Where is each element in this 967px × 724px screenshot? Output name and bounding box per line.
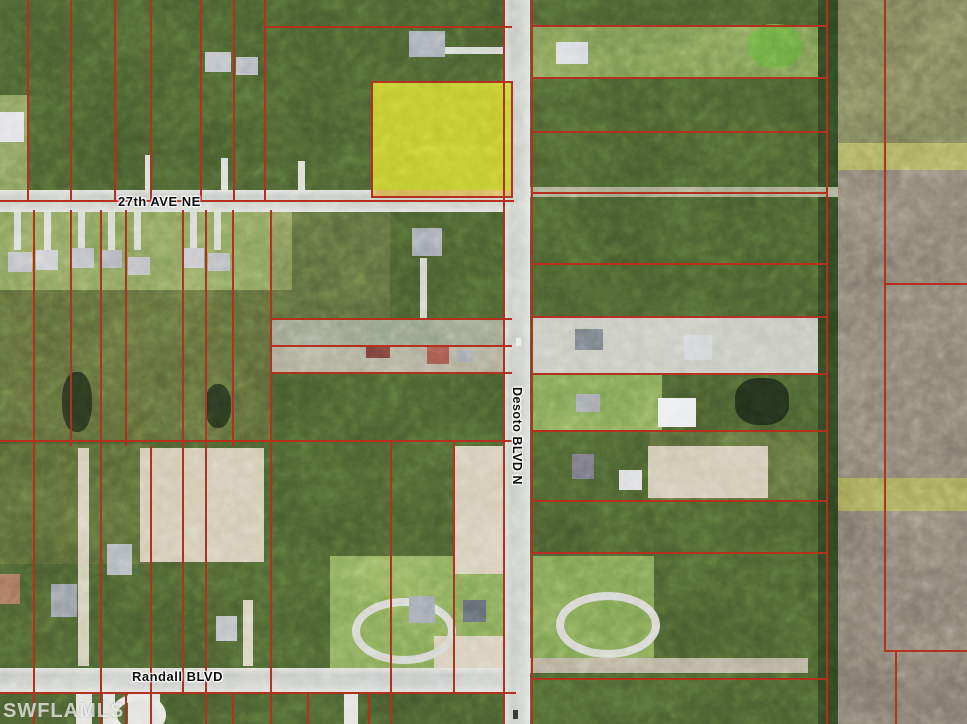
driveway-long	[243, 600, 253, 666]
house	[36, 250, 58, 270]
house	[412, 228, 442, 256]
driveway	[14, 212, 21, 250]
aerial-parcel-map: 27th AVE NE Desoto BLVD N Randall BLVD S…	[0, 0, 967, 724]
driveway	[44, 212, 51, 250]
parcel-line	[125, 210, 127, 446]
east-cleared-strip	[532, 316, 828, 373]
house	[107, 544, 132, 575]
house	[427, 347, 449, 364]
road-desoto	[504, 0, 530, 724]
driveway	[108, 212, 115, 250]
house	[572, 454, 594, 479]
parcel-boundary-layer	[0, 0, 967, 724]
house	[575, 329, 603, 350]
outbuilding	[619, 470, 642, 490]
house	[463, 600, 486, 622]
residential-lawn-row	[0, 212, 292, 290]
sand-clearing	[140, 448, 264, 562]
street-stub	[128, 694, 160, 724]
house	[409, 31, 445, 57]
parcel-line	[0, 692, 516, 694]
house	[236, 57, 258, 75]
parcel-line	[150, 0, 152, 202]
parcel-line	[531, 316, 828, 318]
east-lawn-low	[532, 556, 654, 668]
parcel-line	[182, 210, 184, 446]
scrub-mid	[272, 212, 390, 318]
parcel-line	[531, 0, 533, 724]
house	[684, 335, 712, 360]
scrub-east	[650, 430, 826, 500]
parcel-line	[270, 318, 512, 320]
highlighted-parcel	[372, 82, 512, 197]
parcel-line	[264, 0, 266, 202]
marsh-strip	[270, 318, 512, 345]
parcel-line	[70, 210, 72, 446]
house	[128, 257, 150, 275]
parcel-line	[531, 430, 828, 432]
parcel-line	[307, 694, 309, 724]
street-label-randall-blvd: Randall BLVD	[132, 669, 223, 684]
driveway	[145, 155, 152, 191]
road-27th-ave	[0, 190, 516, 212]
driveway	[221, 158, 228, 192]
outbuilding	[366, 345, 390, 358]
house	[8, 252, 32, 272]
farmstead-strip	[270, 345, 512, 372]
parcel-line	[503, 0, 505, 724]
driveway	[214, 212, 221, 250]
parcel-line	[531, 192, 828, 194]
field-band-south	[838, 478, 967, 511]
street-label-27th-ave-ne: 27th AVE NE	[118, 194, 201, 209]
field-olive-north	[838, 0, 967, 143]
house	[0, 112, 24, 142]
canopy-mottle-texture	[0, 0, 967, 724]
parcel-line	[232, 694, 234, 724]
parcel-line	[531, 500, 828, 502]
driveway-long	[78, 448, 89, 666]
road-randall-dirt-east	[516, 658, 808, 673]
vehicle	[513, 710, 518, 719]
parcel-line	[453, 440, 455, 692]
parcel-line	[200, 0, 202, 202]
driveway	[78, 212, 85, 250]
parcel-line	[531, 77, 828, 79]
pond-green	[748, 24, 802, 68]
lawn-randall-west	[330, 556, 512, 668]
scrub-low-left	[0, 444, 150, 564]
parcel-line	[100, 446, 102, 724]
driveway	[190, 212, 197, 250]
parcel-line	[270, 446, 272, 724]
parcel-line	[531, 263, 828, 265]
house	[208, 253, 230, 271]
pond	[735, 378, 789, 425]
scrub-left	[0, 290, 272, 442]
parcel-line	[884, 0, 886, 652]
parcel-line	[270, 210, 272, 446]
parcel-line	[33, 446, 35, 724]
field-brown-mid	[838, 170, 967, 478]
parcel-line	[100, 210, 102, 446]
house	[216, 616, 237, 641]
circular-driveway	[352, 598, 456, 664]
track-27th-east	[516, 187, 838, 197]
parcel-line	[205, 210, 207, 446]
treeline-strip	[818, 0, 840, 724]
house	[205, 52, 231, 72]
parcel-line	[368, 694, 370, 724]
parcel-line	[531, 678, 828, 680]
parcel-line	[33, 210, 35, 446]
parcel-line	[0, 200, 514, 202]
parcel-line	[264, 26, 512, 28]
parcel-line	[531, 373, 828, 375]
highlight-dirt-edge	[372, 190, 512, 197]
parcel-line	[531, 552, 828, 554]
woods-base	[0, 0, 838, 724]
house	[72, 248, 94, 268]
mls-watermark: SWFLAMLS	[3, 700, 124, 723]
parcel-line	[270, 372, 512, 374]
east-top-parcel	[532, 25, 828, 78]
house	[556, 42, 588, 64]
pond	[62, 372, 92, 432]
parcel-line	[114, 0, 116, 202]
parcel-line	[884, 283, 967, 285]
east-lawn-mid	[532, 374, 662, 432]
outbuilding	[457, 350, 473, 362]
vehicle	[516, 338, 521, 346]
parcel-line	[270, 345, 512, 347]
house	[51, 584, 77, 617]
left-lawn-strip	[0, 95, 27, 205]
parcel-line	[390, 440, 392, 724]
terrain-layer	[0, 0, 967, 724]
highlighted-parcel-border	[371, 81, 513, 198]
street-label-desoto-blvd-n: Desoto BLVD N	[510, 387, 524, 485]
field-brown-south	[838, 511, 967, 724]
parcel-line	[826, 0, 828, 724]
parcel-line	[884, 650, 967, 652]
photo-grain-texture	[0, 0, 967, 724]
house	[0, 574, 20, 604]
parcel-line	[0, 440, 512, 442]
house	[184, 248, 204, 268]
house	[102, 250, 122, 268]
street-stub	[344, 690, 358, 724]
house	[409, 596, 435, 623]
parcel-line	[895, 652, 897, 724]
parcel-line	[182, 446, 184, 692]
road-randall	[0, 668, 516, 692]
parcel-line	[70, 0, 72, 202]
driveway	[298, 161, 305, 191]
parcel-line	[125, 694, 127, 724]
parcel-line	[27, 0, 29, 202]
parcel-line	[232, 210, 234, 446]
circular-driveway	[556, 592, 660, 658]
driveway	[420, 258, 427, 320]
sand-east	[648, 446, 768, 498]
sand-randall-corner	[434, 636, 510, 668]
sand-desoto-west	[455, 446, 513, 574]
field-band-north	[838, 143, 967, 170]
parcel-line	[531, 25, 828, 27]
pond	[205, 384, 231, 428]
house	[658, 398, 696, 427]
house	[576, 394, 600, 412]
parcel-line	[233, 0, 235, 202]
parcel-line	[531, 131, 828, 133]
driveway	[134, 212, 141, 250]
driveway	[441, 47, 505, 54]
